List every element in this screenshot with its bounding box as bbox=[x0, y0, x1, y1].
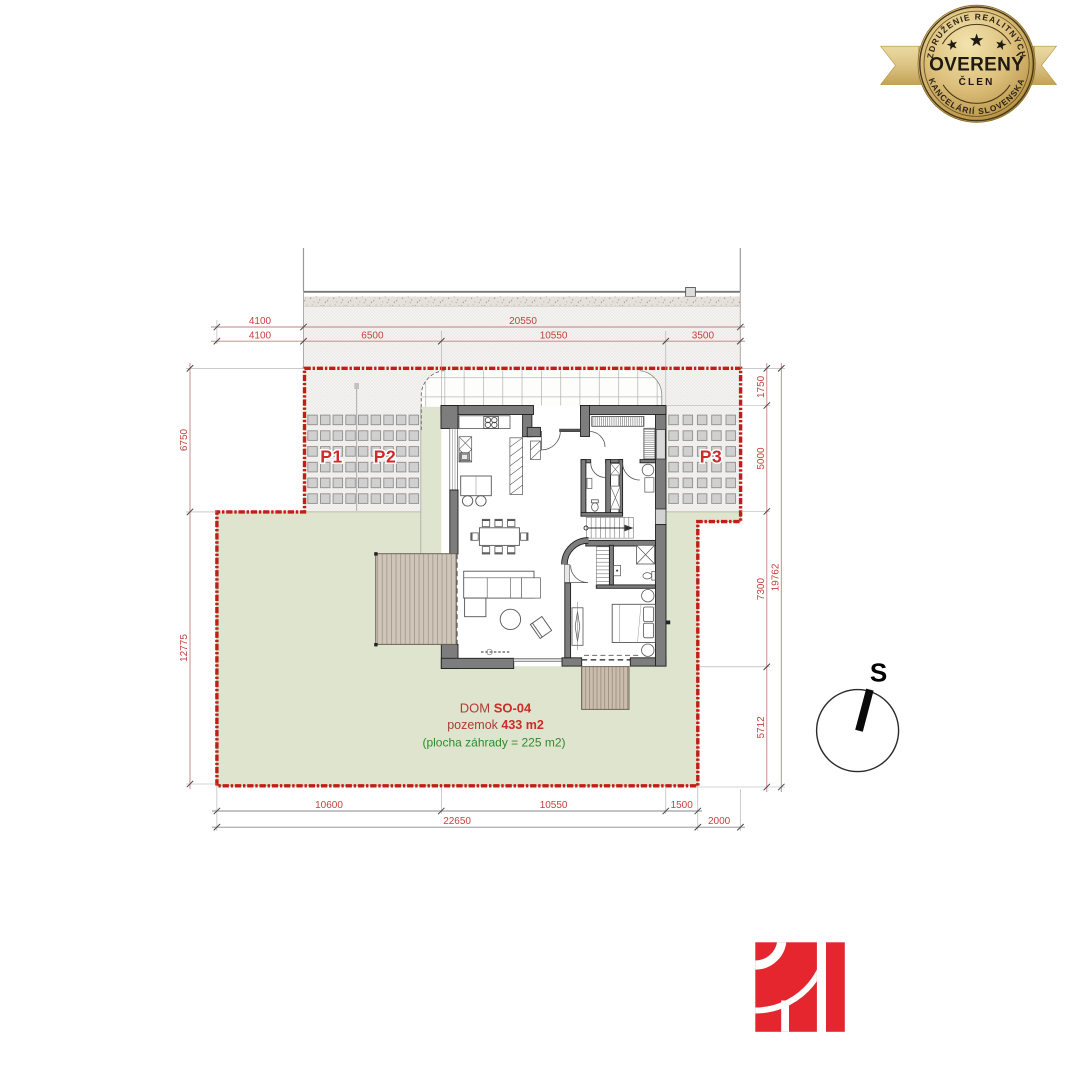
svg-text:5712: 5712 bbox=[756, 716, 767, 739]
svg-text:P2: P2 bbox=[374, 447, 396, 467]
svg-text:P1: P1 bbox=[320, 447, 342, 467]
svg-text:1750: 1750 bbox=[756, 375, 767, 398]
svg-text:6750: 6750 bbox=[179, 428, 190, 451]
svg-text:10600: 10600 bbox=[315, 800, 343, 811]
svg-text:7300: 7300 bbox=[756, 578, 767, 601]
svg-text:4100: 4100 bbox=[249, 330, 272, 341]
svg-text:10550: 10550 bbox=[540, 800, 568, 811]
svg-text:2000: 2000 bbox=[708, 816, 731, 827]
svg-text:10550: 10550 bbox=[540, 330, 568, 341]
svg-text:19762: 19762 bbox=[770, 563, 781, 591]
svg-text:4100: 4100 bbox=[249, 316, 272, 327]
svg-text:OVERENÝ: OVERENÝ bbox=[929, 54, 1024, 76]
svg-text:22650: 22650 bbox=[443, 816, 471, 827]
svg-text:ČLEN: ČLEN bbox=[959, 75, 995, 88]
svg-text:P3: P3 bbox=[700, 447, 722, 467]
svg-text:12775: 12775 bbox=[179, 634, 190, 662]
svg-text:DOM SO-04: DOM SO-04 bbox=[460, 701, 532, 716]
svg-text:S: S bbox=[870, 658, 887, 688]
svg-text:20550: 20550 bbox=[509, 316, 537, 327]
svg-text:(plocha záhrady = 225 m2): (plocha záhrady = 225 m2) bbox=[422, 736, 565, 750]
svg-text:6500: 6500 bbox=[361, 330, 384, 341]
svg-text:1500: 1500 bbox=[671, 800, 694, 811]
svg-text:3500: 3500 bbox=[692, 330, 715, 341]
svg-text:pozemok 433 m2: pozemok 433 m2 bbox=[447, 718, 544, 732]
svg-text:5000: 5000 bbox=[756, 447, 767, 470]
